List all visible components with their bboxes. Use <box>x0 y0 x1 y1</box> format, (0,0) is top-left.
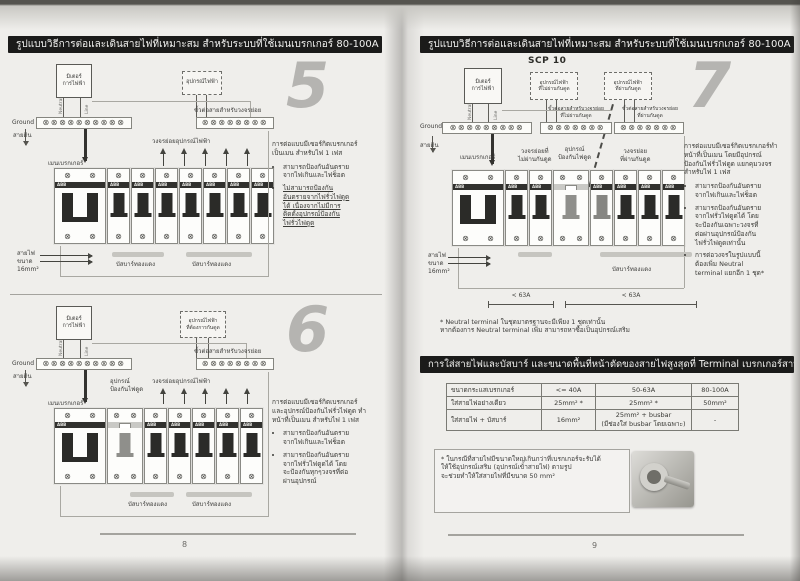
line-wire-label: Line <box>85 347 90 356</box>
page-number-right: 9 <box>592 541 597 550</box>
diagram-6-description: การต่อแบบมีเซอร์กิตเบรกเกอร์ และอุปกรณ์ป… <box>272 398 390 490</box>
table-section-header: การใส่สายไฟและบัสบาร์ และขนาดพื้นที่หน้า… <box>420 356 794 373</box>
main-breaker-module: ⊗⊗ABB⊗⊗ <box>54 168 106 244</box>
busbar-label: บัสบาร์ทองแดง <box>116 261 155 269</box>
ground-label: Ground <box>12 119 34 127</box>
busbar <box>186 492 252 497</box>
wire-size-label: สายไฟ ขนาด 16mm² <box>428 252 450 275</box>
branch-breaker-module: ⊗ABB⊗ <box>590 170 613 246</box>
ground-terminal-strip: ⊗⊗⊗⊗⊗⊗⊗⊗⊗⊗ <box>36 358 132 370</box>
breaker-panel-7: ⊗⊗ABB⊗⊗⊗ABB⊗⊗ABB⊗⊗⊗⊗⊗⊗ABB⊗⊗ABB⊗⊗ABB⊗⊗ABB… <box>452 170 685 246</box>
table-cell: 50mm² <box>692 397 739 410</box>
branch-breaker-module: ⊗ABB⊗ <box>144 408 167 484</box>
breaker-toggle <box>120 433 131 453</box>
wire <box>458 288 684 289</box>
meter-box: มิเตอร์ การไฟฟ้า <box>56 306 92 340</box>
wire <box>488 104 489 122</box>
page-gutter-shadow <box>384 0 424 581</box>
table-header-row: ขนาดกระแสเบรกเกอร์ <= 40A 50-63A 80-100A <box>447 384 739 397</box>
earth-arrow <box>25 129 26 145</box>
breaker-toggle <box>668 195 679 215</box>
breaker-toggle <box>174 433 185 453</box>
rcd-label: อุปกรณ์ ป้องกันไฟดูด <box>110 378 143 394</box>
breaker-toggle <box>209 193 220 213</box>
page-number-left: 8 <box>182 540 187 549</box>
equipment-box-rcd: อุปกรณ์ไฟฟ้า ที่ผ่านกันดูด <box>604 72 652 100</box>
terminal-label-rcd: ขั้วต่อสายสำหรับวงจรย่อย ที่ผ่านกันดูด <box>614 106 686 119</box>
wire-size-table: ขนาดกระแสเบรกเกอร์ <= 40A 50-63A 80-100A… <box>446 383 739 431</box>
wire-size-arrow <box>40 261 92 262</box>
description-bullets: สามารถป้องกันอันตราย จากไฟเกินและไฟช็อต … <box>684 182 796 278</box>
description-bullets: สามารถป้องกันอันตราย จากไฟเกินและไฟช็อต … <box>272 429 390 486</box>
breaker-toggle <box>113 193 124 213</box>
branch-breaker-module: ⊗ABB⊗ <box>240 408 263 484</box>
branch-terminal-label: ขั้วต่อสายสำหรับวงจรย่อย <box>194 107 261 115</box>
earth-wire-label: สายดิน <box>13 132 32 140</box>
scan-top-edge <box>0 0 800 30</box>
breaker-toggle <box>460 195 496 219</box>
diagram-6-numeral: 6 <box>286 302 329 358</box>
wire <box>63 340 64 358</box>
rcd-label: อุปกรณ์ ป้องกันไฟดูด <box>558 146 591 162</box>
branch-breaker-module: ⊗ABB⊗ <box>638 170 661 246</box>
terminal-label-no-rcd: ขั้วต่อสายสำหรับวงจรย่อย ที่ไม่ผ่านกันดู… <box>538 106 614 119</box>
ground-terminal-strip: ⊗⊗⊗⊗⊗⊗⊗⊗⊗⊗ <box>36 117 132 129</box>
breaker-toggle <box>62 193 98 217</box>
branch-breaker-module: ⊗ABB⊗ <box>529 170 552 246</box>
cable-lug-photo <box>632 451 694 507</box>
footnote-box: * ในกรณีที่สายไฟมีขนาดใหญ่เกินกว่าที่เบร… <box>434 449 630 513</box>
bullet: สามารถป้องกันอันตราย จากไฟเกินและไฟช็อต <box>695 182 796 200</box>
dimension-line <box>488 301 554 308</box>
breaker-toggle <box>644 195 655 215</box>
branch-terminal-strip-rcd: ⊗⊗⊗⊗⊗⊗⊗ <box>614 122 684 134</box>
bullet: ไม่สามารถป้องกัน อันตรายจากไฟรั่วไฟดูด ไ… <box>283 184 390 228</box>
breaker-toggle <box>596 195 607 215</box>
breaker-toggle <box>185 193 196 213</box>
breaker-toggle <box>137 193 148 213</box>
description-title: การต่อแบบมีเซอร์กิตเบรกเกอร์ทำ หน้าที่เป… <box>684 142 796 177</box>
equipment-box: อุปกรณ์ไฟฟ้า ที่ต้องการกันดูด <box>180 311 226 338</box>
branch-arrow <box>163 150 164 166</box>
main-breaker-module: ⊗⊗ABB⊗⊗ <box>452 170 504 246</box>
busbar-label: บัสบาร์ทองแดง <box>192 261 231 269</box>
wire-size-arrow <box>448 257 490 258</box>
branch-breaker-module: ⊗ABB⊗ <box>216 408 239 484</box>
wire <box>268 131 269 277</box>
branch-breaker-module: ⊗ABB⊗ <box>505 170 528 246</box>
branch-terminal-label: ขั้วต่อสายสำหรับวงจรย่อย <box>194 348 261 356</box>
table-cell: 80-100A <box>692 384 739 397</box>
description-bullets: สามารถป้องกันอันตราย จากไฟเกินและไฟช็อต … <box>272 163 390 228</box>
table-cell: <= 40A <box>542 384 596 397</box>
branch-arrow <box>205 390 206 404</box>
table-cell: ขนาดกระแสเบรกเกอร์ <box>447 384 542 397</box>
rcd-module: ⊗⊗⊗⊗ <box>553 170 589 246</box>
table-row: ใส่สายไฟอย่างเดียว 25mm² * 25mm² * 50mm² <box>447 397 739 410</box>
busbar-label: บัสบาร์ทองแดง <box>612 266 651 274</box>
breaker-toggle <box>246 433 257 453</box>
meter-box: มิเตอร์ การไฟฟ้า <box>464 68 502 104</box>
breaker-toggle <box>161 193 172 213</box>
breaker-toggle <box>233 193 244 213</box>
breaker-toggle <box>222 433 233 453</box>
wire-size-label: สายไฟ ขนาด 16mm² <box>17 250 39 273</box>
branch-breaker-module: ⊗ABB⊗ <box>203 168 226 244</box>
breaker-panel-5: ⊗⊗ABB⊗⊗⊗ABB⊗⊗ABB⊗⊗ABB⊗⊗ABB⊗⊗ABB⊗⊗ABB⊗⊗AB… <box>54 168 274 244</box>
branch-arrow <box>226 150 227 166</box>
breaker-toggle <box>257 193 268 213</box>
breaker-toggle <box>511 195 522 215</box>
bullet: สามารถป้องกันอันตราย จากไฟรั่วไฟดูดได้ โ… <box>695 204 796 248</box>
diagram-7-description: การต่อแบบมีเซอร์กิตเบรกเกอร์ทำ หน้าที่เป… <box>684 142 796 282</box>
branch-arrow <box>184 390 185 404</box>
table-cell: 16mm² <box>542 410 596 431</box>
table-cell: 25mm² * <box>596 397 692 410</box>
breaker-panel-6: ⊗⊗ABB⊗⊗⊗⊗⊗⊗⊗ABB⊗⊗ABB⊗⊗ABB⊗⊗ABB⊗⊗ABB⊗ <box>54 408 263 484</box>
description-title: การต่อแบบมีเซอร์กิตเบรกเกอร์ เป็นเมน สำห… <box>272 140 390 158</box>
branch-terminal-strip-no-rcd: ⊗⊗⊗⊗⊗⊗⊗ <box>540 122 612 134</box>
branch-breaker-module: ⊗ABB⊗ <box>131 168 154 244</box>
ground-label: Ground <box>12 360 34 368</box>
main-breaker-label: เมนเบรกเกอร์ <box>48 160 83 168</box>
busbar <box>130 492 174 497</box>
diagram-5-description: การต่อแบบมีเซอร์กิตเบรกเกอร์ เป็นเมน สำห… <box>272 140 390 232</box>
branch-breaker-module: ⊗ABB⊗ <box>107 168 130 244</box>
wire <box>268 372 269 517</box>
line-wire-label: Line <box>494 111 499 120</box>
wire <box>472 104 473 122</box>
bullet: สามารถป้องกันอันตราย จากไฟเกินและไฟช็อต <box>283 429 390 447</box>
branch-arrow <box>205 150 206 166</box>
bullet: สามารถป้องกันอันตราย จากไฟรั่วไฟดูดได้ โ… <box>283 451 390 486</box>
table-cell: ใส่สายไฟ + บัสบาร์ <box>447 410 542 431</box>
scan-bottom-shadow <box>0 556 800 581</box>
wire <box>60 516 269 517</box>
wire <box>60 486 61 516</box>
breaker-toggle <box>566 195 577 215</box>
busbar <box>112 252 164 257</box>
table-cell: 50-63A <box>596 384 692 397</box>
branch-arrow <box>163 390 164 404</box>
busbar-label: บัสบาร์ทองแดง <box>128 501 167 509</box>
table-cell: ใส่สายไฟอย่างเดียว <box>447 397 542 410</box>
branch-breaker-module: ⊗ABB⊗ <box>168 408 191 484</box>
main-feed-wire <box>84 129 87 161</box>
branch-breaker-module: ⊗ABB⊗ <box>227 168 250 244</box>
branch-arrow <box>247 150 248 166</box>
wire <box>60 276 269 277</box>
branch-rcd-label: วงจรย่อย ที่ผ่านกันดูด <box>620 148 650 164</box>
main-feed-wire <box>84 370 87 402</box>
earth-arrow <box>25 370 26 386</box>
equipment-box: อุปกรณ์ไฟฟ้า <box>182 71 222 95</box>
branch-breaker-module: ⊗ABB⊗ <box>614 170 637 246</box>
table-cell: 25mm² + busbar (มีช่องใส่ busbar โดยเฉพา… <box>596 410 692 431</box>
wire <box>63 98 64 117</box>
wire <box>458 248 459 288</box>
branch-breaker-module: ⊗ABB⊗ <box>179 168 202 244</box>
wire <box>80 340 81 358</box>
busbar <box>186 252 252 257</box>
branch-breaker-module: ⊗ABB⊗ <box>251 168 274 244</box>
earth-wire-label: สายดิน <box>13 373 32 381</box>
cable-lug-handle <box>664 475 691 490</box>
diagram-7-numeral: 7 <box>688 58 731 114</box>
busbar-label: บัสบาร์ทองแดง <box>192 501 231 509</box>
branch-no-rcd-label: วงจรย่อยที่ ไม่ผ่านกันดูด <box>518 148 552 164</box>
busbar <box>600 252 692 257</box>
breaker-toggle <box>62 433 98 457</box>
dimension-label: < 63A <box>488 292 554 299</box>
ground-label: Ground <box>420 123 442 131</box>
bullet: การต่อวงจรในรูปแบบนี้ ต้องเพิ่ม Neutral … <box>695 251 796 277</box>
rcd-module: ⊗⊗⊗⊗ <box>107 408 143 484</box>
breaker-toggle <box>198 433 209 453</box>
branch-terminal-strip: ⊗⊗⊗⊗⊗⊗⊗⊗ <box>196 358 274 370</box>
diagram-5-numeral: 5 <box>286 58 329 114</box>
wire-size-arrow <box>448 263 490 264</box>
breaker-toggle <box>150 433 161 453</box>
wire <box>92 343 246 344</box>
neutral-terminal-note: * Neutral terminal ในชุดมาตรฐานจะมีเพียง… <box>440 318 702 335</box>
footer-rule <box>448 534 744 536</box>
meter-box: มิเตอร์ การไฟฟ้า <box>56 64 92 98</box>
right-page-header: รูปแบบวิธีการต่อและเดินสายไฟที่เหมาะสม ส… <box>420 36 794 53</box>
ground-terminal-strip: ⊗⊗⊗⊗⊗⊗⊗⊗⊗ <box>442 122 532 134</box>
wire <box>80 98 81 117</box>
model-label: SCP 10 <box>528 56 566 66</box>
breaker-toggle <box>620 195 631 215</box>
earth-arrow <box>432 136 433 152</box>
busbar <box>518 252 552 257</box>
wire-size-arrow <box>40 255 92 256</box>
main-breaker-label: เมนเบรกเกอร์ <box>460 154 495 162</box>
scanned-manual-spread: รูปแบบวิธีการต่อและเดินสายไฟที่เหมาะสม ส… <box>0 0 800 581</box>
main-breaker-label: เมนเบรกเกอร์ <box>48 400 83 408</box>
branch-terminal-strip: ⊗⊗⊗⊗⊗⊗⊗⊗ <box>196 117 274 129</box>
equipment-box-no-rcd: อุปกรณ์ไฟฟ้า ที่ไม่ผ่านกันดูด <box>530 72 578 100</box>
branch-breaker-module: ⊗ABB⊗ <box>662 170 685 246</box>
table-cell: - <box>692 410 739 431</box>
branch-arrow <box>247 390 248 404</box>
branch-breaker-module: ⊗ABB⊗ <box>155 168 178 244</box>
description-title: การต่อแบบมีเซอร์กิตเบรกเกอร์ และอุปกรณ์ป… <box>272 398 390 424</box>
branch-arrow <box>226 390 227 404</box>
branch-arrow <box>184 150 185 166</box>
scan-right-shadow <box>790 0 800 581</box>
footnote-text: * ในกรณีที่สายไฟมีขนาดใหญ่เกินกว่าที่เบร… <box>441 455 623 480</box>
table-row: ใส่สายไฟ + บัสบาร์ 16mm² 25mm² + busbar … <box>447 410 739 431</box>
dimension-line <box>565 301 697 308</box>
table-cell: 25mm² * <box>542 397 596 410</box>
line-wire-label: Line <box>85 105 90 114</box>
footer-rule <box>100 533 356 535</box>
branch-breaker-module: ⊗ABB⊗ <box>192 408 215 484</box>
dimension-label: < 63A <box>565 292 697 299</box>
main-breaker-module: ⊗⊗ABB⊗⊗ <box>54 408 106 484</box>
breaker-toggle <box>535 195 546 215</box>
bullet: สามารถป้องกันอันตราย จากไฟเกินและไฟช็อต <box>283 163 390 181</box>
wire <box>92 101 250 102</box>
